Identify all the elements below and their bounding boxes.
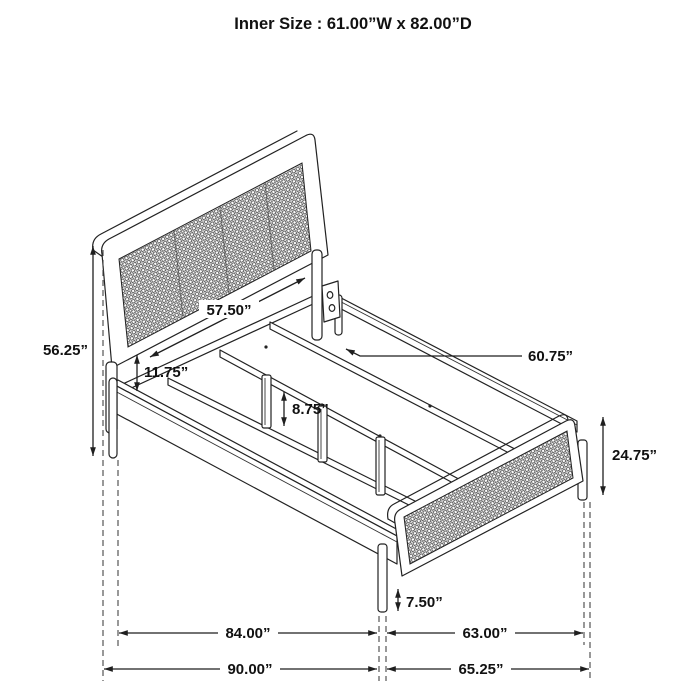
bed-frame-drawing: Inner Size : 61.00”W x 82.00”D: [0, 0, 700, 700]
dim-footboard-overall-width: 65.25”: [387, 660, 589, 678]
dim-label-overall-length: 90.00”: [227, 661, 272, 678]
rail-bracket: [322, 281, 340, 322]
dim-label-slat-length: 60.75”: [528, 348, 573, 365]
dim-headboard-height: 56.25”: [43, 246, 93, 456]
dim-overall-length: 90.00”: [104, 660, 377, 678]
slat: [270, 322, 536, 467]
dim-label-panel-gap: 11.75”: [144, 364, 188, 381]
footboard: [378, 415, 587, 612]
dim-rail-length: 84.00”: [119, 624, 377, 642]
headboard-right-leg: [312, 250, 322, 340]
dim-footboard-height: 24.75”: [603, 417, 657, 495]
dim-footboard-inner-width: 63.00”: [387, 624, 583, 642]
dim-label-headboard-inner-width: 57.50”: [206, 302, 251, 319]
dimension-diagram: Inner Size : 61.00”W x 82.00”D: [0, 0, 700, 700]
footboard-near-leg: [378, 544, 387, 612]
dim-label-footboard-clearance: 7.50”: [406, 594, 443, 611]
dim-label-headboard-height: 56.25”: [43, 342, 88, 359]
page-title: Inner Size : 61.00”W x 82.00”D: [234, 15, 472, 33]
dim-label-rail-length: 84.00”: [225, 625, 270, 642]
rail-top-face: [113, 380, 402, 536]
dim-footboard-clearance: 7.50”: [398, 589, 443, 611]
headboard-left-leg: [106, 362, 117, 458]
dim-label-footboard-inner-width: 63.00”: [462, 625, 507, 642]
dim-label-leg-height: 8.75”: [292, 401, 329, 418]
near-side-rail: [113, 380, 402, 564]
headboard: [93, 131, 342, 368]
support-leg: [262, 375, 271, 428]
dim-label-footboard-overall-width: 65.25”: [458, 661, 503, 678]
dim-label-footboard-height: 24.75”: [612, 447, 657, 464]
support-leg: [376, 437, 385, 495]
left-leg: [109, 378, 117, 458]
bracket-hole: [329, 305, 335, 312]
bracket-hole: [327, 292, 333, 299]
